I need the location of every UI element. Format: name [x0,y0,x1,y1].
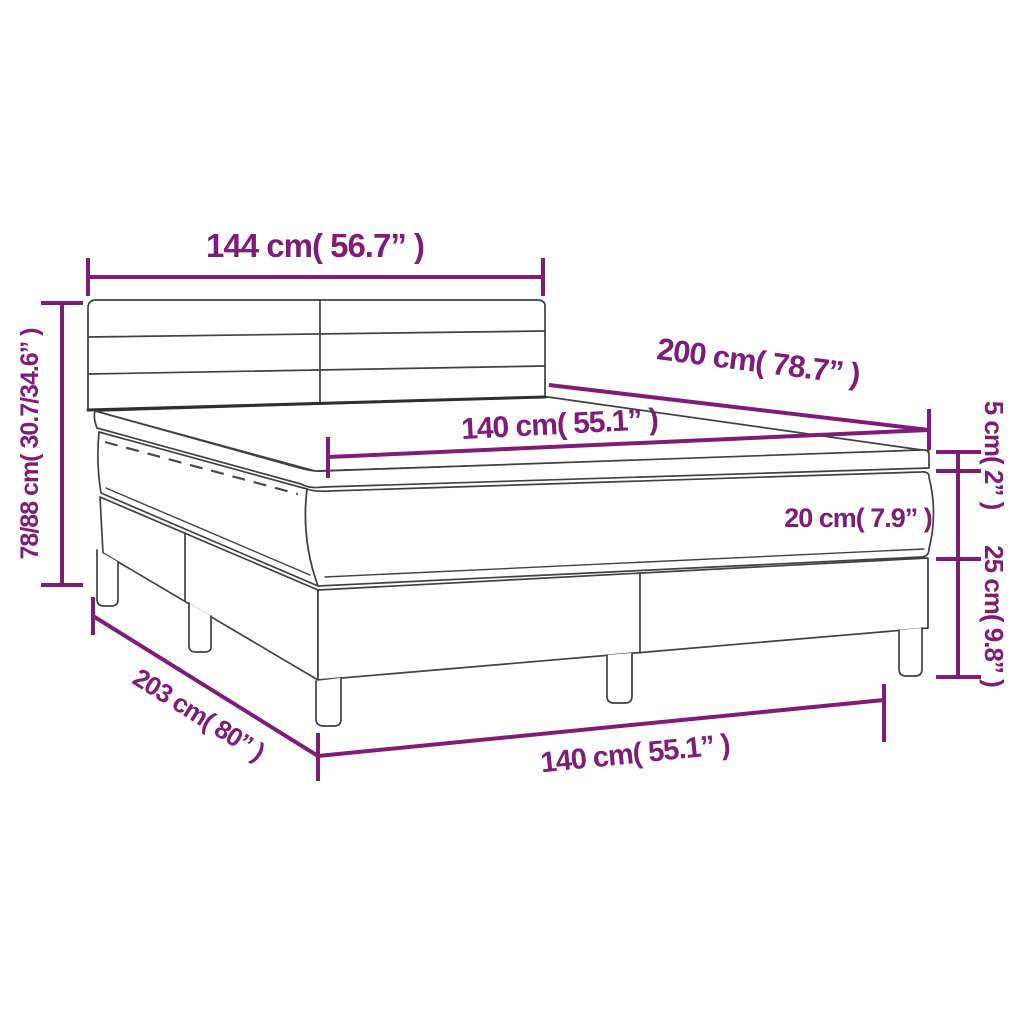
dim-overall-height-label: 78/88 cm( 30.7/34.6” ) [16,328,44,560]
dim-headboard-width: 144 cm( 56.7” ) [88,227,543,296]
dim-height-stack: 5 cm( 2” ) 25 cm( 9.8” ) [936,401,1009,687]
dim-overall-height: 78/88 cm( 30.7/34.6” ) [16,303,83,585]
dim-base-height-label: 25 cm( 9.8” ) [979,545,1009,687]
dim-mattress-height-label: 20 cm( 7.9” ) [784,503,932,533]
dim-width-bottom: 140 cm( 55.1” ) [318,684,884,781]
dimension-line [936,452,981,677]
bed-leg [899,628,922,676]
dim-topper-height-label: 5 cm( 2” ) [979,401,1009,510]
dimension-line [41,303,83,585]
bed-leg [607,653,632,703]
headboard-outline [88,300,545,410]
bed-dimension-diagram: 144 cm( 56.7” ) 78/88 cm( 30.7/34.6” ) 2… [0,0,1024,1024]
bed-leg [316,678,341,726]
dim-width-bottom-label: 140 cm( 55.1” ) [539,729,731,780]
dim-bed-length-label: 200 cm( 78.7” ) [655,331,862,392]
headboard [88,300,545,410]
dim-headboard-width-label: 144 cm( 56.7” ) [206,227,424,264]
product-dimension-diagram: 144 cm( 56.7” ) 78/88 cm( 30.7/34.6” ) 2… [0,0,1024,1024]
